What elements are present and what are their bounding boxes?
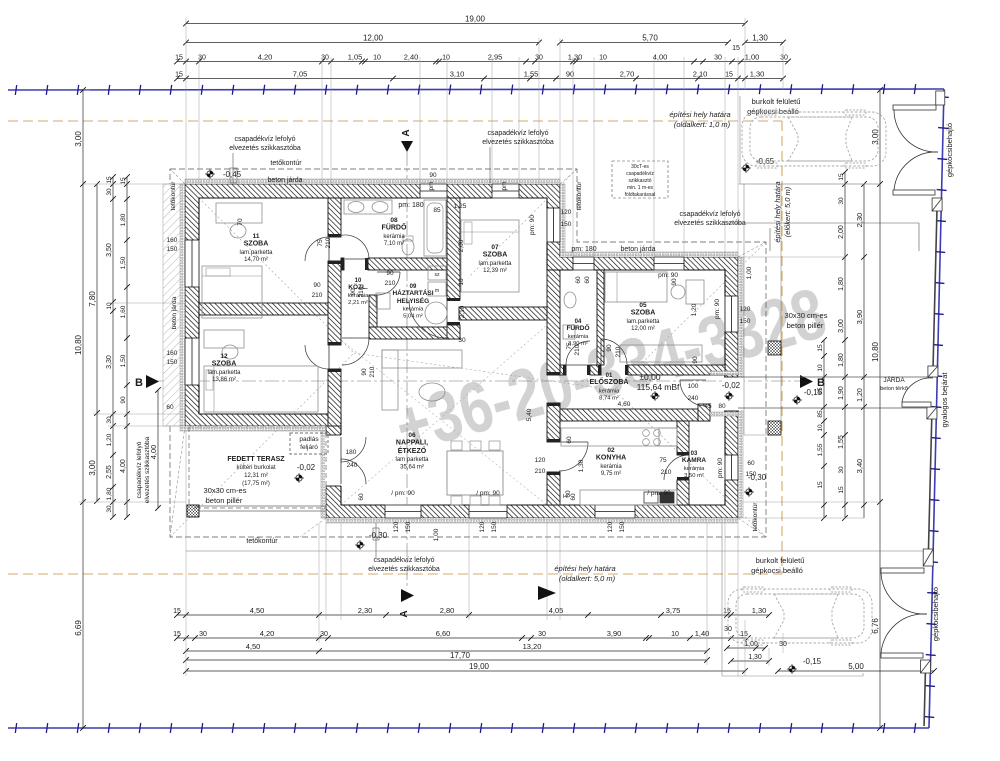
svg-text:30: 30 bbox=[106, 416, 113, 424]
svg-text:12: 12 bbox=[220, 353, 228, 360]
svg-text:60: 60 bbox=[584, 276, 591, 284]
svg-text:30: 30 bbox=[538, 631, 546, 638]
svg-text:15: 15 bbox=[817, 344, 824, 352]
svg-text:csapadékvíz lefolyó: csapadékvíz lefolyó bbox=[679, 211, 740, 218]
svg-text:sz: sz bbox=[435, 272, 441, 278]
svg-text:210: 210 bbox=[535, 468, 546, 475]
svg-text:12,39 m²: 12,39 m² bbox=[483, 268, 507, 274]
svg-text:kerámia: kerámia bbox=[403, 307, 424, 313]
svg-text:HÁZTARTÁSI: HÁZTARTÁSI bbox=[392, 288, 433, 297]
svg-text:2,21 m²: 2,21 m² bbox=[348, 300, 368, 306]
svg-text:240: 240 bbox=[347, 462, 358, 469]
svg-text:FÜRDŐ: FÜRDŐ bbox=[566, 323, 589, 332]
svg-text:9,75 m²: 9,75 m² bbox=[601, 471, 621, 477]
svg-text:csapadékvíz lefolyó: csapadékvíz lefolyó bbox=[136, 441, 143, 498]
svg-text:2,00: 2,00 bbox=[838, 225, 845, 239]
svg-text:180: 180 bbox=[346, 449, 357, 456]
svg-text:-0,45: -0,45 bbox=[223, 170, 242, 179]
svg-text:75: 75 bbox=[317, 239, 324, 247]
svg-text:1,80: 1,80 bbox=[838, 277, 845, 291]
svg-text:1,20: 1,20 bbox=[106, 433, 113, 446]
svg-text:1,00: 1,00 bbox=[433, 528, 440, 541]
svg-text:(oldalkert: 5,0 m): (oldalkert: 5,0 m) bbox=[559, 574, 616, 583]
svg-text:2,40: 2,40 bbox=[404, 52, 419, 61]
svg-text:120: 120 bbox=[479, 521, 486, 532]
svg-text:pm: 90: pm: 90 bbox=[714, 299, 721, 319]
svg-text:burkolt felületű: burkolt felületű bbox=[756, 556, 805, 565]
svg-text:KONYHA: KONYHA bbox=[596, 455, 626, 462]
svg-text:1,25: 1,25 bbox=[454, 203, 467, 210]
svg-text:15: 15 bbox=[725, 71, 733, 78]
svg-text:beton pillér: beton pillér bbox=[787, 321, 824, 330]
svg-text:09: 09 bbox=[410, 284, 417, 290]
svg-text:2,70: 2,70 bbox=[620, 69, 635, 78]
svg-text:min. 1 m-es: min. 1 m-es bbox=[627, 185, 654, 191]
svg-text:1,00: 1,00 bbox=[746, 266, 753, 279]
svg-text:60: 60 bbox=[575, 276, 582, 284]
svg-text:210: 210 bbox=[369, 366, 376, 377]
svg-text:30: 30 bbox=[780, 54, 788, 61]
svg-text:pm: 90: pm: 90 bbox=[529, 215, 536, 235]
svg-text:feljáró: feljáró bbox=[300, 444, 318, 451]
svg-text:1,80: 1,80 bbox=[120, 213, 127, 226]
svg-text:160: 160 bbox=[167, 350, 178, 357]
svg-text:kerámia: kerámia bbox=[383, 234, 405, 240]
svg-text:2,10: 2,10 bbox=[459, 305, 466, 318]
svg-text:lam.parketta: lam.parketta bbox=[478, 261, 512, 267]
svg-text:pm: 180: pm: 180 bbox=[571, 246, 596, 253]
svg-text:12,00 m²: 12,00 m² bbox=[631, 326, 655, 332]
svg-text:pm: pm bbox=[501, 181, 508, 190]
svg-text:4,60: 4,60 bbox=[618, 401, 631, 408]
svg-text:120: 120 bbox=[393, 521, 400, 532]
svg-text:3,00: 3,00 bbox=[838, 319, 845, 333]
svg-text:90: 90 bbox=[386, 270, 394, 277]
svg-text:11: 11 bbox=[253, 233, 260, 240]
svg-text:150: 150 bbox=[561, 221, 572, 228]
svg-text:tetőkontúr: tetőkontúr bbox=[576, 181, 583, 211]
svg-text:beton járda: beton járda bbox=[620, 246, 655, 253]
svg-text:2,30: 2,30 bbox=[855, 213, 864, 228]
svg-text:1,55: 1,55 bbox=[817, 443, 824, 456]
svg-text:30: 30 bbox=[106, 505, 113, 513]
svg-text:07: 07 bbox=[491, 244, 499, 251]
svg-text:210: 210 bbox=[325, 237, 332, 248]
svg-text:15: 15 bbox=[175, 71, 183, 78]
svg-text:gépkocsi beálló: gépkocsi beálló bbox=[747, 107, 799, 116]
svg-text:60: 60 bbox=[166, 404, 174, 411]
svg-text:-0,65: -0,65 bbox=[756, 157, 775, 166]
svg-text:30: 30 bbox=[838, 466, 845, 474]
svg-text:kültéri burkolat: kültéri burkolat bbox=[236, 465, 275, 471]
svg-text:75: 75 bbox=[566, 342, 573, 350]
svg-text:120: 120 bbox=[740, 306, 751, 313]
svg-text:10,80: 10,80 bbox=[871, 341, 880, 362]
svg-text:1,80: 1,80 bbox=[838, 353, 845, 367]
svg-text:30x30 cm-es: 30x30 cm-es bbox=[785, 311, 828, 320]
svg-text:210: 210 bbox=[661, 469, 672, 476]
svg-text:4,00: 4,00 bbox=[120, 459, 127, 473]
svg-text:(előkert: 5,0 m): (előkert: 5,0 m) bbox=[783, 186, 792, 237]
svg-text:160: 160 bbox=[167, 237, 178, 244]
svg-text:10: 10 bbox=[817, 424, 824, 432]
svg-text:lam.parketta: lam.parketta bbox=[207, 370, 241, 376]
svg-text:-0,02: -0,02 bbox=[297, 463, 316, 472]
svg-text:4,00: 4,00 bbox=[653, 52, 668, 61]
svg-text:elvezetés szikkasztóba: elvezetés szikkasztóba bbox=[229, 145, 301, 152]
svg-text:2,55: 2,55 bbox=[106, 465, 113, 479]
svg-text:210: 210 bbox=[358, 286, 365, 297]
svg-text:pm: 90: pm: 90 bbox=[658, 272, 678, 279]
svg-text:120: 120 bbox=[561, 209, 572, 216]
svg-text:30: 30 bbox=[320, 631, 328, 638]
svg-text:4,05: 4,05 bbox=[549, 606, 564, 615]
svg-text:kerámia: kerámia bbox=[599, 388, 620, 394]
svg-text:elvezetés szikkasztóba: elvezetés szikkasztóba bbox=[674, 220, 746, 227]
svg-text:35,64 m²: 35,64 m² bbox=[400, 464, 424, 470]
svg-text:kerámia: kerámia bbox=[600, 464, 622, 470]
svg-text:100: 100 bbox=[688, 383, 699, 390]
svg-text:12,00: 12,00 bbox=[363, 33, 384, 42]
svg-text:90: 90 bbox=[361, 368, 368, 376]
svg-text:1,30: 1,30 bbox=[752, 606, 767, 615]
svg-text:beton pillér: beton pillér bbox=[206, 496, 243, 505]
svg-text:90: 90 bbox=[350, 288, 357, 296]
svg-text:10: 10 bbox=[599, 54, 607, 61]
svg-text:5,00: 5,00 bbox=[848, 662, 864, 671]
svg-text:3,00: 3,00 bbox=[88, 460, 97, 476]
svg-text:6,60: 6,60 bbox=[436, 629, 451, 638]
svg-text:1,30: 1,30 bbox=[748, 654, 762, 661]
svg-text:ELŐSZOBA: ELŐSZOBA bbox=[590, 377, 629, 386]
svg-text:17,70: 17,70 bbox=[450, 651, 471, 660]
svg-text:60: 60 bbox=[570, 493, 577, 501]
svg-text:beton járda: beton járda bbox=[267, 177, 302, 184]
svg-text:8,74 m²: 8,74 m² bbox=[599, 395, 619, 401]
svg-text:ÉTKEZŐ: ÉTKEZŐ bbox=[398, 446, 427, 455]
svg-text:4,50: 4,50 bbox=[246, 642, 261, 651]
svg-text:SZOBA: SZOBA bbox=[244, 241, 269, 248]
svg-text:6,69: 6,69 bbox=[74, 620, 83, 636]
svg-text:10: 10 bbox=[458, 278, 465, 286]
svg-text:210: 210 bbox=[574, 344, 581, 355]
svg-text:beton térkő: beton térkő bbox=[880, 386, 908, 392]
svg-text:30: 30 bbox=[198, 54, 206, 61]
svg-text:padlás: padlás bbox=[299, 436, 319, 443]
svg-text:30: 30 bbox=[199, 631, 207, 638]
svg-text:3,50: 3,50 bbox=[106, 243, 113, 257]
svg-text:70: 70 bbox=[237, 218, 244, 226]
svg-text:KAMRA: KAMRA bbox=[682, 457, 706, 464]
svg-text:elvezetés szikkasztóba: elvezetés szikkasztóba bbox=[144, 436, 151, 503]
svg-text:lam.parketta: lam.parketta bbox=[626, 319, 660, 325]
svg-text:(oldalkert: 1,0 m): (oldalkert: 1,0 m) bbox=[674, 120, 731, 129]
svg-text:210: 210 bbox=[385, 280, 396, 287]
svg-text:10: 10 bbox=[355, 278, 362, 284]
svg-text:/ pm: 90: / pm: 90 bbox=[647, 490, 671, 497]
svg-text:85: 85 bbox=[817, 410, 824, 418]
svg-text:15: 15 bbox=[173, 608, 181, 615]
svg-text:19,00: 19,00 bbox=[465, 14, 486, 23]
svg-text:pm: pm bbox=[428, 181, 435, 190]
svg-text:90: 90 bbox=[671, 278, 678, 286]
svg-text:1,60: 1,60 bbox=[120, 305, 127, 318]
svg-text:90: 90 bbox=[606, 344, 613, 352]
svg-text:/ pm: 90: / pm: 90 bbox=[476, 490, 500, 497]
svg-text:1,05: 1,05 bbox=[348, 52, 363, 61]
svg-text:pm: 90: pm: 90 bbox=[717, 458, 724, 478]
svg-text:02: 02 bbox=[607, 447, 615, 454]
svg-text:elvezetés szikkasztóba: elvezetés szikkasztóba bbox=[368, 566, 440, 573]
svg-text:csapadékvíz lefolyó: csapadékvíz lefolyó bbox=[234, 136, 295, 143]
svg-text:19,00: 19,00 bbox=[469, 662, 490, 671]
svg-text:gyalogos bejárat: gyalogos bejárat bbox=[940, 372, 949, 428]
svg-text:csapadékvíz lefolyó: csapadékvíz lefolyó bbox=[487, 130, 548, 137]
svg-text:tetőkontúr: tetőkontúr bbox=[270, 160, 302, 167]
svg-text:FEDETT TERASZ: FEDETT TERASZ bbox=[227, 456, 285, 463]
svg-text:-0,30: -0,30 bbox=[748, 473, 767, 482]
svg-text:90: 90 bbox=[692, 356, 699, 364]
svg-text:2,30: 2,30 bbox=[358, 606, 373, 615]
svg-text:4,20: 4,20 bbox=[260, 629, 275, 638]
svg-text:-0,30: -0,30 bbox=[369, 531, 388, 540]
svg-text:15: 15 bbox=[740, 631, 748, 638]
svg-text:30: 30 bbox=[714, 54, 722, 61]
svg-text:14,70 m²: 14,70 m² bbox=[244, 257, 268, 263]
svg-text:1,30: 1,30 bbox=[578, 459, 585, 472]
svg-text:1,90: 1,90 bbox=[838, 386, 845, 400]
svg-text:150: 150 bbox=[167, 246, 178, 253]
svg-text:3,90: 3,90 bbox=[855, 310, 864, 325]
svg-text:10: 10 bbox=[817, 364, 824, 372]
svg-text:30: 30 bbox=[321, 54, 329, 61]
svg-text:80: 80 bbox=[718, 403, 726, 410]
svg-text:m: m bbox=[435, 288, 439, 294]
svg-text:75: 75 bbox=[659, 457, 667, 464]
svg-text:csapadékvíz lefolyó: csapadékvíz lefolyó bbox=[373, 557, 434, 564]
svg-text:-0,15: -0,15 bbox=[804, 388, 823, 397]
svg-text:90: 90 bbox=[313, 282, 321, 289]
svg-text:15: 15 bbox=[732, 45, 740, 52]
svg-text:csapadékvíz: csapadékvíz bbox=[626, 171, 654, 177]
svg-text:1,30: 1,30 bbox=[568, 52, 583, 61]
svg-text:13,86 m²: 13,86 m² bbox=[212, 377, 236, 383]
svg-text:3,50 m²: 3,50 m² bbox=[684, 473, 704, 479]
svg-text:10: 10 bbox=[442, 54, 450, 61]
svg-text:-0,15: -0,15 bbox=[803, 657, 822, 666]
svg-text:30x30 cm-es: 30x30 cm-es bbox=[204, 486, 247, 495]
svg-text:SZOBA: SZOBA bbox=[483, 252, 508, 259]
svg-text:10,80: 10,80 bbox=[74, 334, 83, 355]
svg-text:1,30: 1,30 bbox=[750, 69, 765, 78]
svg-text:60: 60 bbox=[358, 493, 365, 501]
svg-text:15: 15 bbox=[106, 176, 113, 184]
svg-text:10: 10 bbox=[671, 631, 679, 638]
svg-text:tetőkontúr: tetőkontúr bbox=[170, 181, 177, 211]
svg-text:SZOBA: SZOBA bbox=[212, 361, 237, 368]
svg-text:pm: 180: pm: 180 bbox=[398, 202, 423, 209]
svg-text:HELYISÉG: HELYISÉG bbox=[397, 296, 429, 305]
svg-text:05: 05 bbox=[639, 302, 647, 309]
svg-text:lam.parketta: lam.parketta bbox=[239, 250, 273, 256]
svg-text:150: 150 bbox=[491, 521, 498, 532]
svg-text:1,30: 1,30 bbox=[752, 33, 768, 42]
svg-text:3,10: 3,10 bbox=[450, 69, 465, 78]
svg-text:1,80: 1,80 bbox=[106, 487, 113, 500]
svg-text:FÜRDŐ: FÜRDŐ bbox=[382, 223, 407, 232]
svg-text:03: 03 bbox=[691, 451, 698, 457]
svg-text:150: 150 bbox=[740, 318, 751, 325]
svg-text:lam parketta: lam parketta bbox=[395, 457, 429, 463]
svg-text:H: H bbox=[563, 494, 567, 500]
svg-text:06: 06 bbox=[408, 432, 416, 439]
svg-text:A: A bbox=[399, 610, 410, 617]
svg-text:120: 120 bbox=[607, 521, 614, 532]
svg-text:1,55: 1,55 bbox=[838, 435, 845, 449]
svg-text:B: B bbox=[135, 377, 143, 389]
svg-text:4,20: 4,20 bbox=[258, 52, 273, 61]
svg-text:beton járda: beton járda bbox=[171, 296, 178, 329]
svg-text:5,70: 5,70 bbox=[642, 33, 658, 42]
svg-text:3,90: 3,90 bbox=[607, 629, 622, 638]
svg-text:2,00: 2,00 bbox=[458, 239, 465, 252]
svg-text:tetőkontúr: tetőkontúr bbox=[752, 502, 759, 532]
svg-text:2,10: 2,10 bbox=[693, 69, 708, 78]
svg-text:240: 240 bbox=[688, 395, 699, 402]
svg-text:90: 90 bbox=[429, 172, 437, 179]
svg-text:5,04 m²: 5,04 m² bbox=[403, 314, 423, 320]
svg-text:60: 60 bbox=[747, 460, 755, 467]
svg-text:90: 90 bbox=[120, 396, 127, 404]
svg-text:15: 15 bbox=[817, 481, 824, 489]
svg-text:15: 15 bbox=[175, 54, 183, 61]
svg-text:115,64 mBf: 115,64 mBf bbox=[637, 382, 680, 392]
svg-text:1,00: 1,00 bbox=[744, 641, 758, 648]
svg-text:3,00: 3,00 bbox=[74, 131, 83, 147]
svg-text:7,05: 7,05 bbox=[293, 69, 308, 78]
svg-text:30: 30 bbox=[838, 197, 845, 205]
svg-text:15: 15 bbox=[173, 631, 181, 638]
svg-text:gépkocsibehajtó: gépkocsibehajtó bbox=[945, 123, 954, 177]
svg-text:85: 85 bbox=[433, 207, 441, 214]
svg-text:kerámia: kerámia bbox=[684, 466, 705, 472]
svg-text:08: 08 bbox=[390, 217, 398, 224]
svg-text:15: 15 bbox=[838, 486, 845, 494]
svg-text:NAPPALI,: NAPPALI, bbox=[396, 440, 428, 447]
svg-text:/ pm: 90: / pm: 90 bbox=[391, 490, 415, 497]
svg-text:10: 10 bbox=[373, 54, 381, 61]
svg-text:2,95: 2,95 bbox=[488, 52, 503, 61]
svg-text:építési hely határa: építési hely határa bbox=[773, 181, 782, 242]
svg-text:kerámia: kerámia bbox=[568, 334, 589, 340]
svg-text:210: 210 bbox=[312, 292, 323, 299]
svg-text:1,50: 1,50 bbox=[120, 256, 127, 269]
svg-text:210: 210 bbox=[615, 346, 622, 357]
svg-text:120: 120 bbox=[535, 457, 546, 464]
svg-text:SZOBA: SZOBA bbox=[631, 310, 656, 317]
svg-text:15: 15 bbox=[120, 177, 127, 185]
svg-text:7,10 m²: 7,10 m² bbox=[384, 241, 404, 247]
svg-text:30: 30 bbox=[458, 337, 466, 344]
svg-text:60: 60 bbox=[566, 436, 573, 444]
svg-text:15: 15 bbox=[723, 608, 731, 615]
svg-text:3,75: 3,75 bbox=[666, 606, 681, 615]
svg-text:1,20: 1,20 bbox=[691, 303, 698, 316]
svg-text:12,31 m²: 12,31 m² bbox=[244, 473, 268, 479]
svg-text:30: 30 bbox=[106, 188, 113, 196]
svg-text:3,30: 3,30 bbox=[106, 355, 113, 369]
svg-text:1,50: 1,50 bbox=[120, 354, 127, 367]
svg-text:5,40: 5,40 bbox=[526, 408, 533, 421]
svg-text:±0,00: ±0,00 bbox=[639, 372, 660, 382]
svg-text:-0,02: -0,02 bbox=[722, 381, 741, 390]
svg-text:150: 150 bbox=[405, 521, 412, 532]
svg-text:tetőkontúr: tetőkontúr bbox=[246, 538, 278, 545]
svg-text:13,20: 13,20 bbox=[523, 642, 542, 651]
svg-text:A: A bbox=[401, 129, 412, 136]
svg-text:3,40: 3,40 bbox=[855, 459, 864, 474]
svg-text:04: 04 bbox=[575, 319, 582, 325]
svg-text:30cT-es: 30cT-es bbox=[631, 164, 649, 170]
svg-text:gépkocsibehajtó: gépkocsibehajtó bbox=[931, 587, 940, 641]
svg-text:150: 150 bbox=[619, 521, 626, 532]
svg-text:01: 01 bbox=[606, 373, 613, 379]
svg-text:földtakarással: földtakarással bbox=[625, 192, 656, 198]
svg-text:3,00: 3,00 bbox=[871, 129, 880, 145]
svg-text:burkolt felületű: burkolt felületű bbox=[752, 97, 801, 106]
svg-text:15: 15 bbox=[838, 173, 845, 181]
svg-text:1,00: 1,00 bbox=[745, 52, 760, 61]
svg-text:JÁRDA: JÁRDA bbox=[883, 375, 905, 384]
svg-text:2,80: 2,80 bbox=[440, 606, 455, 615]
svg-text:elvezetés szikkasztóba: elvezetés szikkasztóba bbox=[482, 139, 554, 146]
svg-text:7,80: 7,80 bbox=[88, 291, 97, 307]
svg-text:1,55: 1,55 bbox=[524, 69, 539, 78]
svg-text:1,20: 1,20 bbox=[857, 388, 864, 402]
svg-text:45: 45 bbox=[704, 403, 712, 410]
svg-text:4,50: 4,50 bbox=[250, 606, 265, 615]
svg-text:építési hely határa: építési hely határa bbox=[554, 564, 615, 573]
svg-text:szikkasztó: szikkasztó bbox=[628, 178, 651, 184]
svg-text:150: 150 bbox=[167, 359, 178, 366]
svg-text:építési hely határa: építési hely határa bbox=[669, 110, 730, 119]
svg-text:gépkocsi beálló: gépkocsi beálló bbox=[751, 566, 803, 575]
